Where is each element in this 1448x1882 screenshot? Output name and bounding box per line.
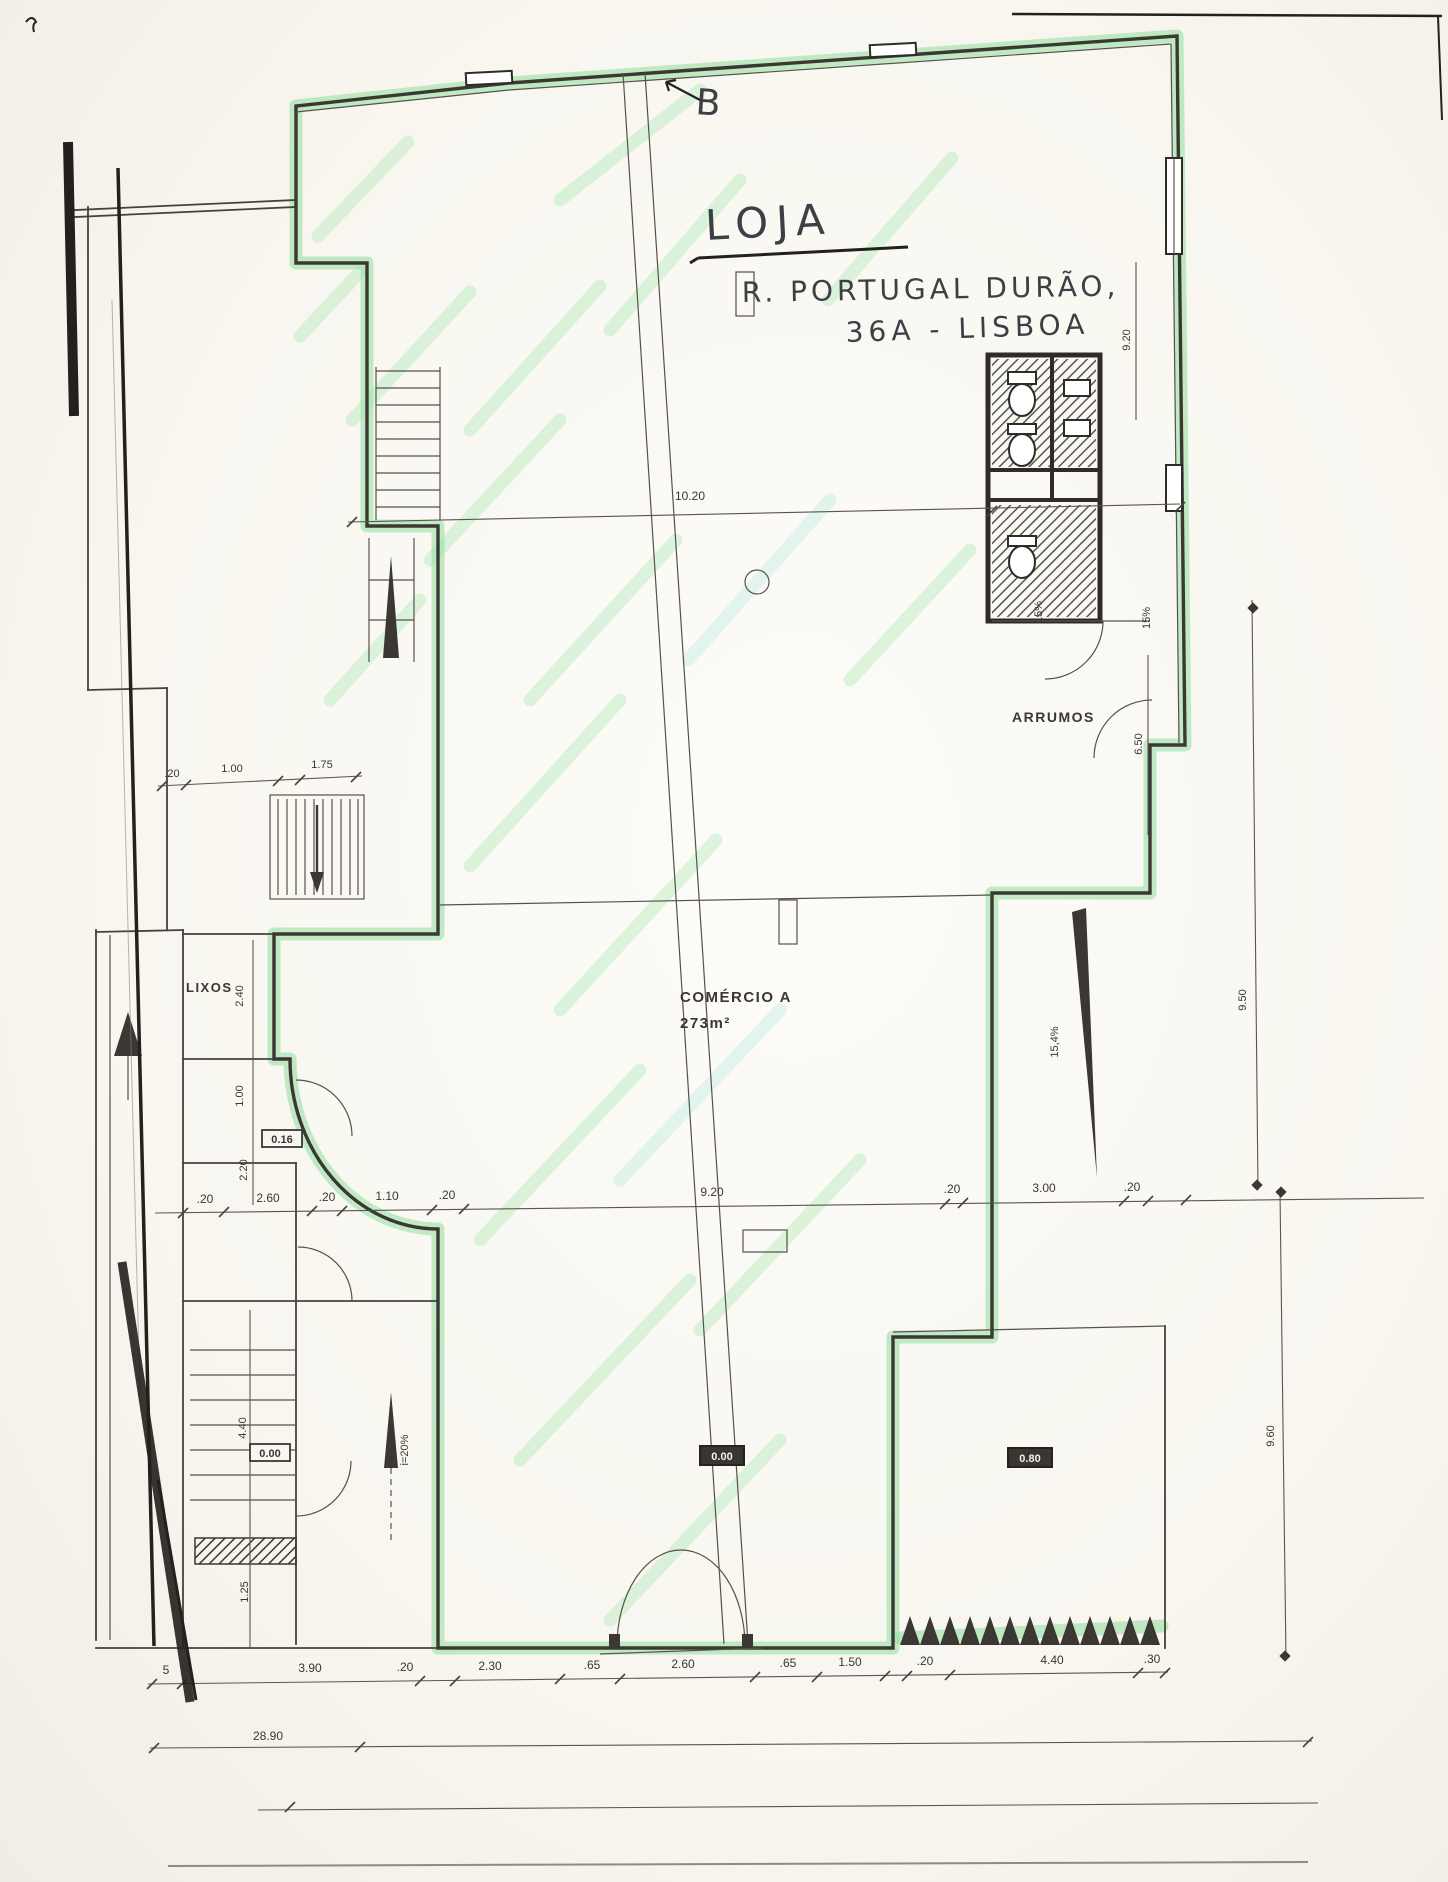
dim-bot-1: 3.90: [298, 1661, 322, 1675]
dim-mid-2: .20: [319, 1190, 336, 1204]
room-label-trash: LIXOS: [186, 980, 233, 995]
dim-overall-width: 28.90: [253, 1729, 283, 1743]
ramp-arrow-left: [384, 1392, 398, 1468]
dim-bot-8: .20: [917, 1654, 934, 1668]
dim-bot-10: .30: [1144, 1652, 1161, 1666]
dim-mid-6: .20: [944, 1182, 961, 1196]
dim-bot-7: 1.50: [838, 1655, 862, 1669]
window: [870, 43, 917, 57]
stairs-mid-left: [270, 795, 364, 899]
stair-direction-arrow: [383, 556, 399, 658]
dimension-labels: 10.20 .20 1.00 1.75 .20 2.60 .20 1.10 .2…: [163, 329, 1277, 1743]
dim-top-width: 10.20: [675, 489, 705, 503]
dim-left-4: 1.25: [239, 1581, 251, 1602]
dim-mid-4: .20: [439, 1188, 456, 1202]
dim-right-wall-top: 9.20: [1121, 329, 1133, 350]
dim-left-3: 4.40: [237, 1417, 249, 1438]
slope-labels: i=20% 15,4% 15% 15%: [399, 601, 1153, 1466]
room-area-commerce: 273m²: [680, 1015, 731, 1032]
dim-bot-0: 5: [163, 1663, 170, 1677]
dim-ul-1: 1.00: [221, 763, 242, 775]
dim-mid-1: 2.60: [256, 1191, 280, 1205]
level-markers: 0.16 0.00 0.00 0.80: [250, 1130, 1052, 1467]
pen-squiggle: [26, 18, 36, 32]
dim-left-1: 1.00: [234, 1085, 246, 1106]
dim-mid-5: 9.20: [700, 1185, 724, 1199]
slope-label-right-ramp: 15,4%: [1049, 1026, 1061, 1057]
dim-mid-8: .20: [1124, 1180, 1141, 1194]
hatched-stair-strip: [195, 1538, 296, 1564]
dim-mid-3: 1.10: [375, 1189, 399, 1203]
dim-bot-6: .65: [780, 1656, 797, 1670]
window: [466, 71, 513, 85]
section-letter: B: [694, 82, 722, 125]
dim-bot-4: .65: [584, 1658, 601, 1672]
slope-label-left-ramp: i=20%: [399, 1434, 411, 1465]
ramp-wedge-right: [1072, 908, 1097, 1178]
handwritten-annotations: B LOJA R. PORTUGAL DURÃO, 36A - LISBOA: [666, 80, 1120, 349]
room-labels: COMÉRCIO A 273m² ARRUMOS LIXOS: [186, 709, 1095, 1032]
slope-label-wc-1: 15%: [1033, 601, 1045, 623]
dimension-lines: [147, 262, 1424, 1812]
level-label-right: 0.80: [1019, 1453, 1040, 1465]
dim-right-margin-upper: 9.50: [1237, 989, 1249, 1010]
scanned-floor-plan-page: 0.16 0.00 0.00 0.80 COMÉRCIO A 273m² ARR…: [0, 0, 1448, 1882]
column: [779, 900, 797, 944]
level-label-corridor: 0.16: [271, 1134, 292, 1146]
doors: [296, 1080, 762, 1654]
dim-bot-9: 4.40: [1040, 1653, 1064, 1667]
dim-left-0: 2.40: [234, 985, 246, 1006]
level-label-center: 0.00: [711, 1451, 732, 1463]
room-label-commerce: COMÉRCIO A: [680, 989, 792, 1006]
wc-block: [988, 355, 1152, 758]
dim-bot-2: .20: [397, 1660, 414, 1674]
dim-mid-7: 3.00: [1032, 1181, 1056, 1195]
handwritten-address-1: R. PORTUGAL DURÃO,: [742, 269, 1120, 309]
handwritten-title: LOJA: [704, 194, 834, 250]
stair-direction-arrow: [310, 872, 324, 893]
slope-label-wc-2: 15%: [1141, 607, 1153, 629]
dim-bot-3: 2.30: [478, 1659, 502, 1673]
dim-right-margin-lower: 9.60: [1265, 1425, 1277, 1446]
dim-ul-2: 1.75: [311, 759, 332, 771]
dim-ul-0: .20: [164, 768, 179, 780]
floor-plan-drawing: 0.16 0.00 0.00 0.80 COMÉRCIO A 273m² ARR…: [0, 0, 1448, 1882]
dim-storage-depth: 6.50: [1133, 733, 1145, 754]
level-label-left: 0.00: [259, 1448, 280, 1460]
dim-bot-5: 2.60: [671, 1657, 695, 1671]
room-label-storage: ARRUMOS: [1012, 709, 1095, 725]
dim-mid-0: .20: [197, 1192, 214, 1206]
handwritten-address-2: 36A - LISBOA: [845, 308, 1090, 349]
dim-left-2: 2.20: [238, 1159, 250, 1180]
door-swing-arc: [1045, 621, 1103, 679]
